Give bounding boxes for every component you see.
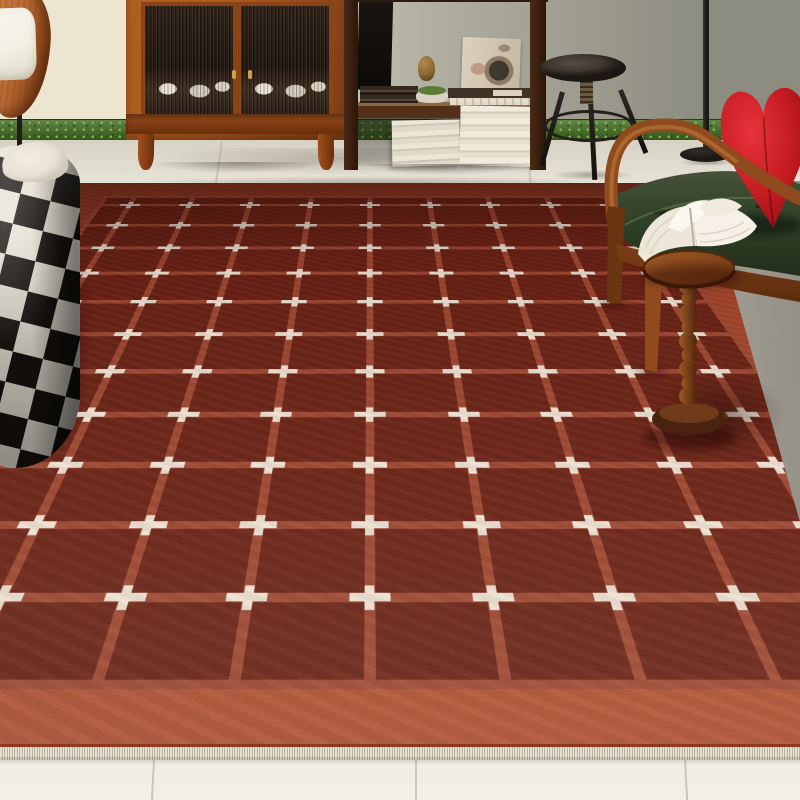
rug-cross bbox=[420, 202, 441, 208]
table-base-top bbox=[659, 403, 719, 423]
living-room-scene bbox=[0, 0, 800, 800]
rug-cross bbox=[156, 244, 182, 251]
moss-bowl bbox=[416, 90, 448, 103]
rug-cross bbox=[205, 297, 233, 306]
rug-cross bbox=[789, 515, 800, 535]
rug-cross bbox=[428, 269, 453, 277]
rug-cross bbox=[224, 244, 249, 251]
rug-cross bbox=[479, 202, 501, 208]
table-beaded-stem bbox=[679, 277, 697, 405]
open-shelf-unit bbox=[344, 0, 548, 182]
rug-cross bbox=[359, 222, 380, 229]
rug-cross bbox=[447, 407, 481, 421]
checkered-pouf bbox=[0, 146, 80, 468]
cabinet-knob-right bbox=[248, 70, 252, 79]
shelf-post-left bbox=[344, 0, 358, 170]
rug-cross bbox=[275, 329, 304, 340]
dark-book-stack bbox=[360, 86, 418, 103]
rug-cross bbox=[104, 222, 129, 229]
rug-cross bbox=[0, 585, 28, 610]
rug-cross bbox=[356, 329, 383, 340]
cabinet-bottom-rail bbox=[126, 114, 348, 134]
rug-cross bbox=[93, 365, 128, 377]
rug-cross bbox=[436, 329, 465, 340]
book-shadow bbox=[642, 265, 742, 287]
rug-cross bbox=[461, 515, 501, 535]
rug-cross bbox=[239, 202, 261, 208]
rug-cross bbox=[357, 297, 383, 306]
rug-cross bbox=[100, 585, 149, 610]
rug-cross bbox=[425, 244, 449, 251]
rug-cross bbox=[432, 297, 459, 306]
rug-cross bbox=[422, 222, 444, 229]
rug-cross bbox=[591, 585, 640, 610]
rug-cross bbox=[231, 222, 254, 229]
rug-cross bbox=[117, 202, 141, 208]
rug-cross bbox=[112, 329, 144, 340]
book-spine-label bbox=[493, 90, 522, 96]
rug-cross bbox=[215, 269, 241, 277]
book-page-edges bbox=[450, 98, 532, 105]
cabinet-door-left bbox=[141, 2, 237, 122]
magazine-stack-right bbox=[459, 105, 532, 166]
rug-cross bbox=[358, 269, 382, 277]
cabinet-door-right bbox=[237, 2, 333, 122]
rug-cross bbox=[680, 515, 727, 535]
rug-cross bbox=[353, 457, 388, 474]
rug-cross bbox=[354, 407, 386, 421]
sculpture-light-panel bbox=[0, 7, 37, 81]
bronze-vase bbox=[418, 56, 435, 81]
rug-cross bbox=[349, 585, 391, 610]
rug-cross bbox=[711, 585, 764, 610]
rug-cross bbox=[355, 365, 384, 377]
brown-book bbox=[448, 88, 534, 98]
rug-cross bbox=[351, 515, 389, 535]
rug-fringe-shadow bbox=[0, 757, 800, 765]
rug-cross bbox=[168, 222, 192, 229]
rug-cross bbox=[281, 297, 308, 306]
rug-cross bbox=[180, 365, 213, 377]
rug-cross bbox=[360, 202, 380, 208]
rug-cross bbox=[516, 329, 546, 340]
rug-cross bbox=[507, 297, 535, 306]
rug-cross bbox=[147, 457, 186, 474]
rug-cross bbox=[259, 407, 293, 421]
rug-cross bbox=[570, 515, 614, 535]
rug-cross bbox=[193, 329, 223, 340]
rug-cross bbox=[470, 585, 515, 610]
leaning-art-panel bbox=[357, 0, 393, 90]
rug-cross bbox=[13, 515, 60, 535]
rug-cross bbox=[143, 269, 171, 277]
rug-cross bbox=[291, 244, 315, 251]
armchair-group bbox=[555, 60, 800, 480]
rug-cross bbox=[441, 365, 472, 377]
rug-cross bbox=[299, 202, 320, 208]
rug-cross bbox=[286, 269, 311, 277]
shelf-top-board bbox=[344, 0, 548, 2]
illustrated-box bbox=[461, 37, 521, 93]
rug-cross bbox=[224, 585, 269, 610]
rug-cross bbox=[491, 244, 516, 251]
rug-cross bbox=[238, 515, 278, 535]
rug-cross bbox=[485, 222, 508, 229]
magazine-stack-left bbox=[392, 119, 461, 166]
rug-cross bbox=[126, 515, 170, 535]
rug-cross bbox=[128, 297, 158, 306]
display-cabinet bbox=[126, 0, 348, 180]
pouf-shading bbox=[0, 146, 80, 468]
rug-cross bbox=[178, 202, 201, 208]
rug-cross bbox=[499, 269, 525, 277]
rug-cross bbox=[295, 222, 317, 229]
rug-cross bbox=[250, 457, 287, 474]
rug-cross bbox=[268, 365, 299, 377]
cabinet-knob-left bbox=[232, 70, 236, 79]
rug-cross bbox=[165, 407, 201, 421]
rug-cross bbox=[359, 244, 382, 251]
rug-cross bbox=[453, 457, 490, 474]
